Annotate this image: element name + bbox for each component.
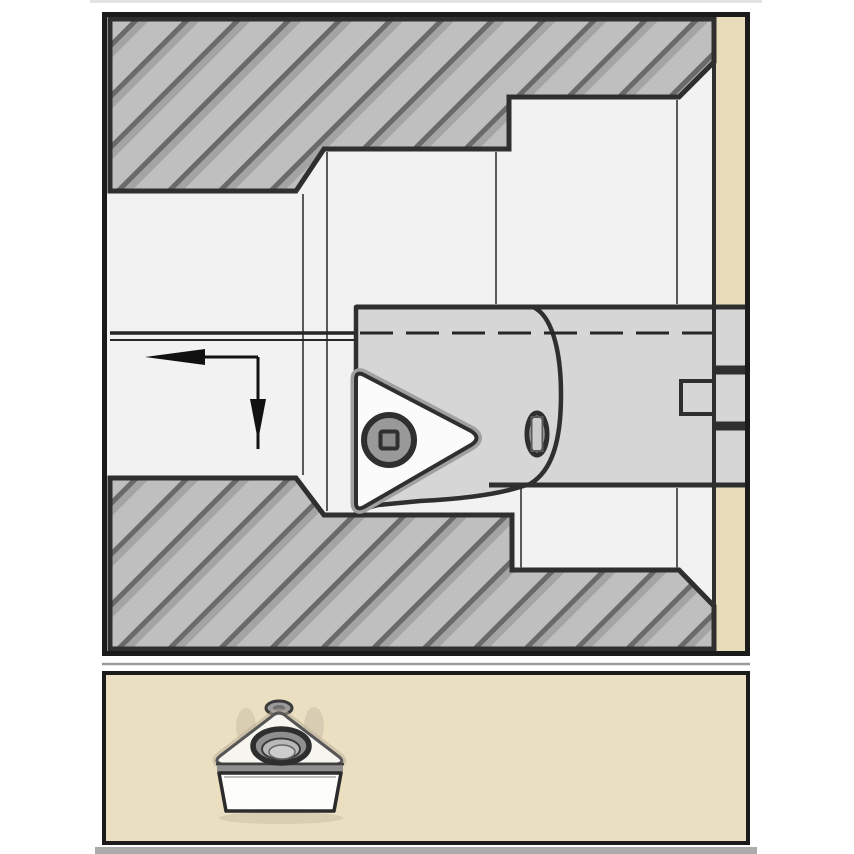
- side-port-icon: [527, 413, 547, 455]
- insert-panel-background: [106, 675, 746, 841]
- figure-canvas: [0, 0, 854, 854]
- screw-hole-bore: [269, 745, 295, 759]
- catalog-figure: [0, 0, 854, 854]
- clamp-screw-socket-icon: [381, 432, 398, 449]
- page-bottom-edge-band: [95, 847, 757, 854]
- application-panel: [105, 15, 748, 654]
- side-clamp-port: [527, 413, 547, 455]
- insert-front-face: [219, 773, 341, 811]
- insert-screw-hole: [253, 729, 309, 763]
- insert-clamp-screw: [364, 415, 414, 465]
- page-top-edge-line: [90, 0, 762, 3]
- insert-panel: [104, 673, 748, 843]
